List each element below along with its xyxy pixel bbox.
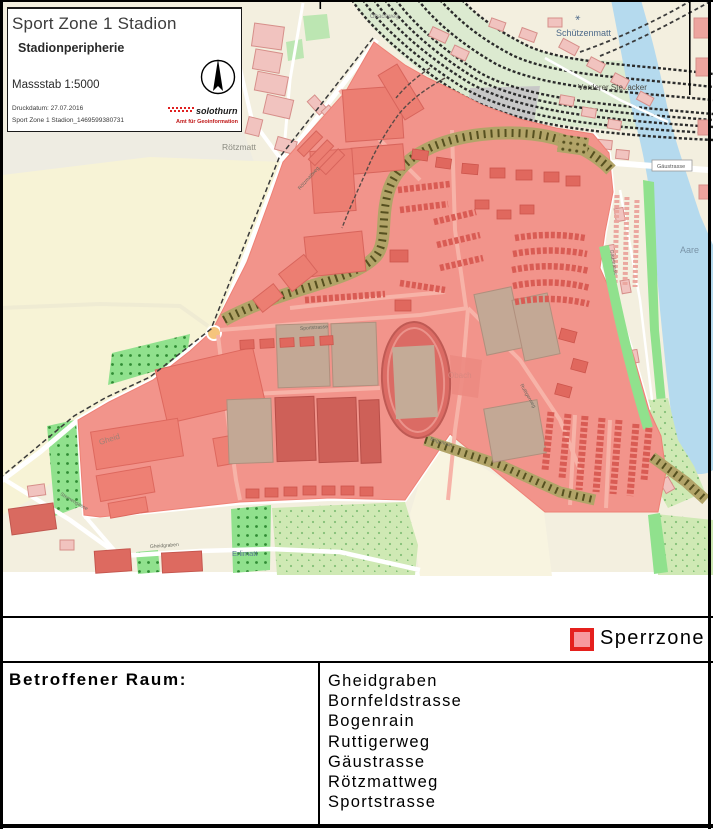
svg-text:⚹: ⚹ [575, 12, 581, 22]
svg-text:Erlimatt: Erlimatt [232, 549, 258, 558]
svg-text:Obach: Obach [448, 371, 472, 380]
svg-text:solothurn: solothurn [196, 106, 238, 116]
svg-text:Rötzmatt: Rötzmatt [222, 142, 257, 152]
svg-text:Amt für Geoinformation: Amt für Geoinformation [176, 119, 239, 125]
svg-text:Schützenmatt: Schützenmatt [556, 28, 612, 38]
svg-text:Aare: Aare [680, 245, 699, 255]
svg-text:Gäustrasse: Gäustrasse [657, 164, 685, 170]
svg-text:Vorderer Ste..acker: Vorderer Ste..acker [578, 83, 647, 92]
svg-text:Obachweg: Obachweg [370, 14, 399, 20]
